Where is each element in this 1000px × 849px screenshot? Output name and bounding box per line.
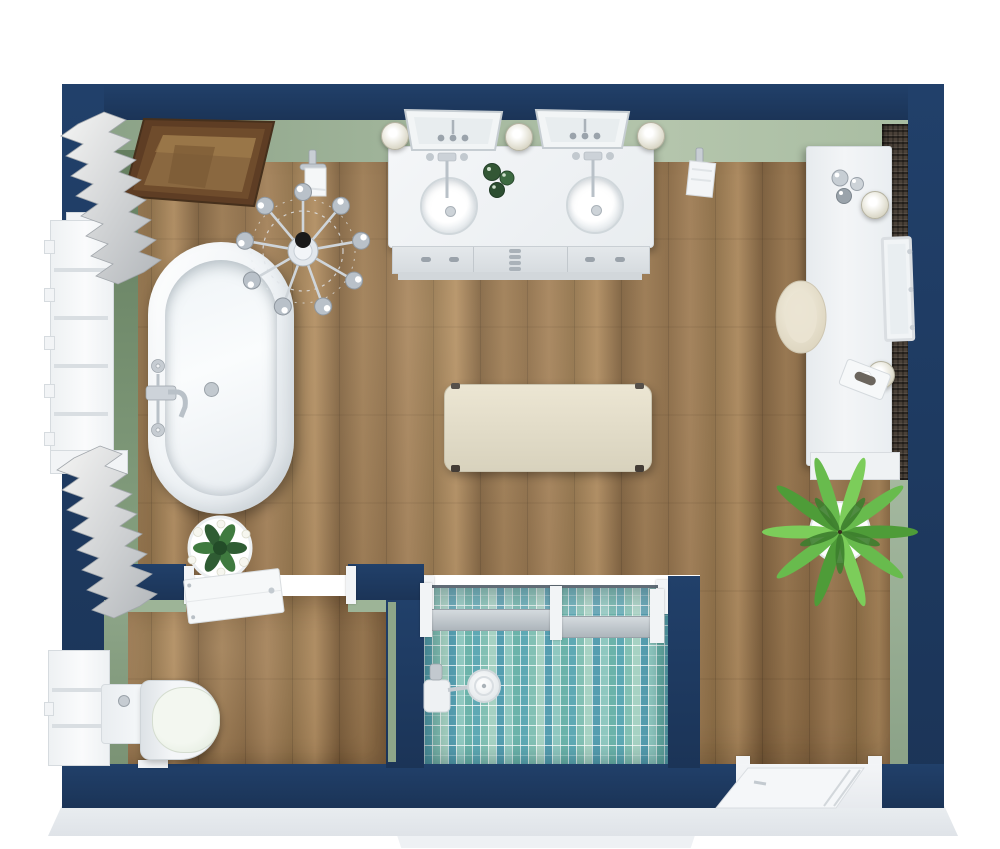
flower-plant[interactable]	[188, 517, 251, 579]
entry-door[interactable]	[716, 768, 864, 808]
perfume-bottles[interactable]	[832, 170, 864, 204]
wc-door[interactable]	[184, 568, 285, 623]
amenity-bottles-green[interactable]	[484, 164, 515, 198]
floor-plan-canvas	[0, 0, 1000, 849]
vanity-faucet-right[interactable]	[572, 152, 614, 197]
palm-plant[interactable]	[762, 456, 918, 608]
shower-fixture[interactable]	[424, 664, 500, 712]
towel-hook[interactable]	[686, 148, 715, 197]
vanity-stool[interactable]	[776, 281, 826, 353]
vanity-mirror-right[interactable]	[536, 110, 629, 148]
leaning-mirror[interactable]	[882, 237, 915, 340]
tissue-box[interactable]	[839, 359, 892, 401]
decor-overlay	[0, 0, 1000, 849]
wood-framed-mirror[interactable]	[124, 119, 274, 206]
vanity-faucet-left[interactable]	[426, 153, 468, 198]
tub-faucet[interactable]	[146, 360, 185, 437]
vanity-mirror-left[interactable]	[405, 110, 502, 150]
curtain-lower[interactable]	[57, 446, 157, 618]
